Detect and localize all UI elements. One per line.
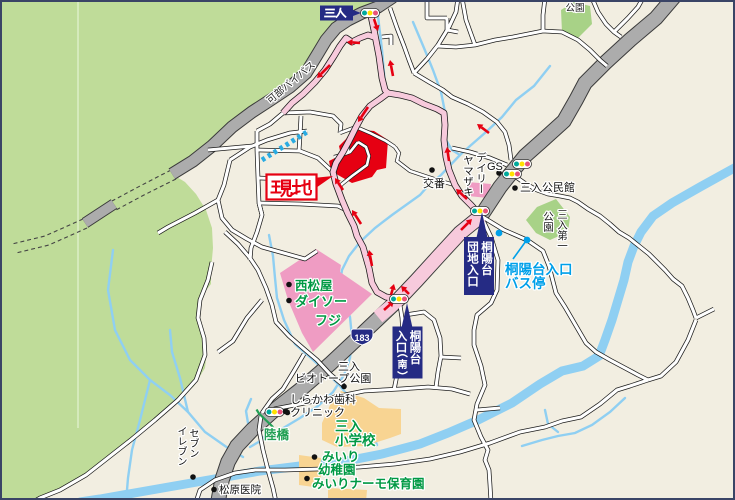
svg-text:三入: 三入 xyxy=(338,361,360,373)
svg-text:しらかわ歯科: しらかわ歯科 xyxy=(290,392,356,406)
svg-text:三入公民館: 三入公民館 xyxy=(520,180,575,194)
svg-text:幼稚園: 幼稚園 xyxy=(318,462,356,477)
svg-text:バス停: バス停 xyxy=(505,275,546,291)
svg-text:団地入口: 団地入口 xyxy=(466,240,479,288)
svg-text:三入: 三入 xyxy=(335,419,362,434)
svg-text:小学校: 小学校 xyxy=(335,432,376,448)
svg-text:フジ: フジ xyxy=(315,313,341,328)
svg-text:183: 183 xyxy=(354,333,369,343)
svg-text:ビオトープ公園: ビオトープ公園 xyxy=(295,372,371,385)
svg-text:公園: 公園 xyxy=(565,3,584,14)
svg-text:公園: 公園 xyxy=(542,211,554,233)
svg-text:セブン: セブン xyxy=(187,428,199,458)
svg-text:桐陽台: 桐陽台 xyxy=(409,329,422,365)
svg-text:南: 南 xyxy=(395,358,407,370)
svg-text:GS: GS xyxy=(487,161,503,173)
svg-text:桐陽台: 桐陽台 xyxy=(480,240,493,276)
svg-text:松原医院: 松原医院 xyxy=(219,483,261,496)
svg-text:イレブン: イレブン xyxy=(175,426,187,466)
svg-text:陸橋: 陸橋 xyxy=(264,427,290,442)
svg-text:ダイソー: ダイソー xyxy=(295,294,347,309)
svg-text:入口: 入口 xyxy=(395,330,408,354)
svg-text:西松屋: 西松屋 xyxy=(295,278,333,293)
svg-text:桐陽台入口: 桐陽台入口 xyxy=(505,261,573,277)
svg-text:交番: 交番 xyxy=(423,176,445,190)
svg-text:ヤマザキ: ヤマザキ xyxy=(462,155,474,197)
svg-text:デイリー: デイリー xyxy=(475,151,487,194)
svg-text:みいり: みいり xyxy=(322,450,360,464)
svg-text:みいりナーモ保育園: みいりナーモ保育園 xyxy=(312,476,425,491)
svg-text:クリニック: クリニック xyxy=(290,406,345,419)
svg-text:三入第一: 三入第一 xyxy=(556,209,568,251)
